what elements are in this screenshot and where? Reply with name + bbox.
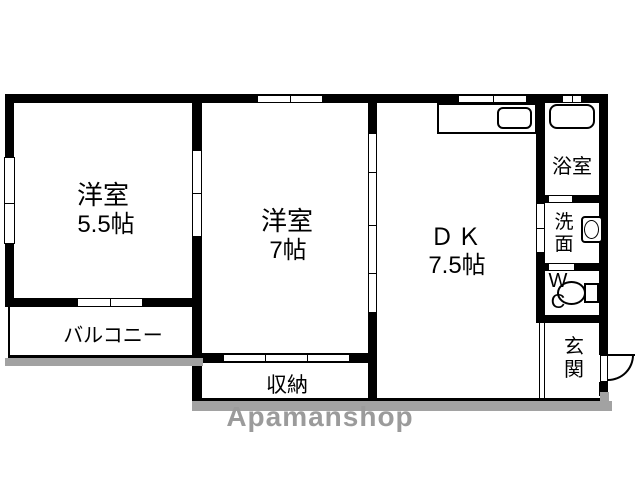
washroom-label: 洗 面 bbox=[552, 212, 576, 256]
floor-plan: 洋室 5.5帖 洋室 7帖 ＤＫ 7.5帖 浴室 洗 面 W C 玄 関 収納 … bbox=[0, 0, 640, 480]
room2-size-label: 7帖 bbox=[240, 230, 336, 265]
balcony-shadow bbox=[5, 358, 203, 366]
sliding-door-storage-c bbox=[307, 354, 350, 362]
window-top-room2-a bbox=[257, 95, 291, 103]
sliding-door-balcony-a bbox=[77, 298, 111, 307]
wall-room1-room2-lower bbox=[192, 237, 202, 400]
window-left-b bbox=[4, 203, 15, 244]
apamanshop-watermark: Apamanshop bbox=[170, 401, 470, 433]
window-top-room2-b bbox=[290, 95, 323, 103]
room1-size-label: 5.5帖 bbox=[55, 204, 157, 239]
toilet-tank-icon bbox=[584, 283, 599, 303]
window-top-dk-a bbox=[458, 95, 494, 103]
balcony-label: バルコニー bbox=[40, 319, 186, 348]
window-left-a bbox=[4, 157, 15, 204]
door-dk-washroom-a bbox=[536, 203, 545, 229]
entrance-door-arc-icon bbox=[608, 355, 634, 381]
sliding-door-storage-b bbox=[265, 354, 308, 362]
wall-left-upper bbox=[5, 103, 14, 157]
bathtub-icon bbox=[549, 104, 595, 129]
sliding-door-room1-room2-a bbox=[192, 150, 202, 194]
sliding-door-balcony-b bbox=[110, 298, 143, 307]
sliding-door-room2-dk-a bbox=[368, 133, 377, 173]
window-top-bath-b bbox=[572, 95, 582, 103]
entrance-step-line-b bbox=[544, 323, 545, 398]
kitchen-sink-icon bbox=[497, 107, 532, 129]
window-top-dk-b bbox=[493, 95, 527, 103]
wall-room1-room2-upper bbox=[192, 94, 202, 150]
entrance-door-leaf bbox=[600, 355, 608, 382]
door-washroom-bath bbox=[548, 195, 573, 203]
wall-left-lower bbox=[5, 244, 14, 298]
wall-room2-dk-upper bbox=[368, 94, 377, 133]
wc-label: W C bbox=[546, 271, 570, 313]
sliding-door-room1-room2-b bbox=[192, 193, 202, 237]
door-dk-washroom-b bbox=[536, 228, 545, 253]
dk-size-label: 7.5帖 bbox=[407, 245, 507, 280]
sliding-door-room2-dk-b bbox=[368, 172, 377, 226]
sliding-door-room2-dk-d bbox=[368, 273, 377, 313]
storage-label: 収納 bbox=[244, 369, 330, 399]
bath-label: 浴室 bbox=[541, 150, 603, 179]
washbasin-bowl-icon bbox=[584, 220, 599, 239]
wall-wc-entrance bbox=[536, 315, 608, 323]
entrance-label: 玄 関 bbox=[562, 336, 586, 382]
sliding-door-room2-dk-c bbox=[368, 225, 377, 274]
corner-shadow bbox=[600, 392, 609, 402]
entrance-step-line-a bbox=[539, 323, 540, 398]
sliding-door-storage-a bbox=[223, 354, 266, 362]
balcony-left-line bbox=[8, 307, 10, 355]
